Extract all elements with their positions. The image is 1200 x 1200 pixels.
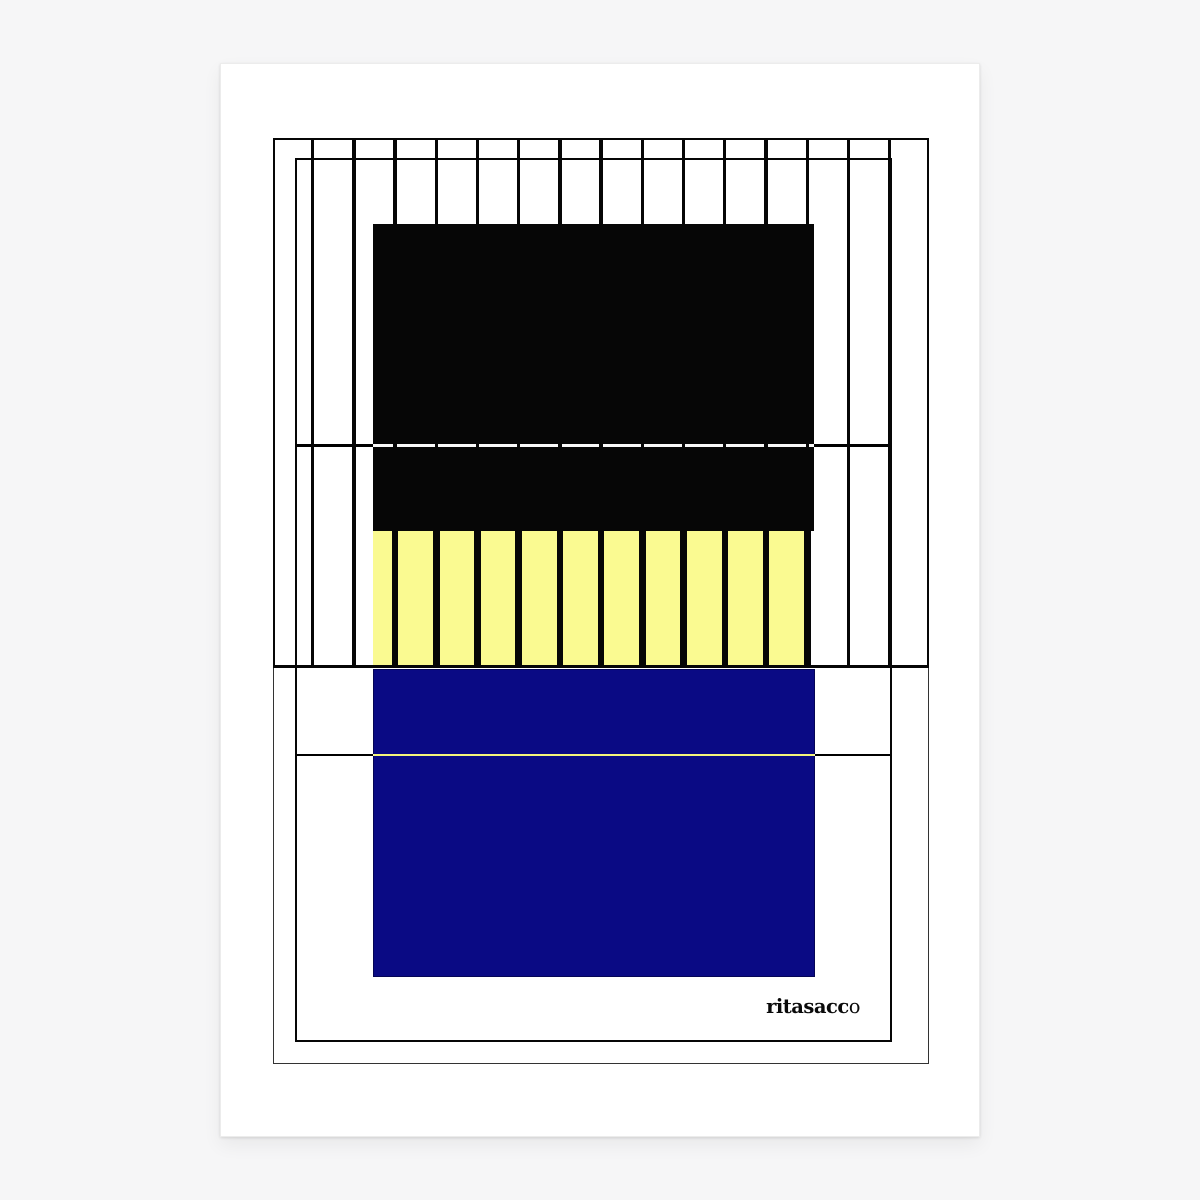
page-background: ritasacco (0, 0, 1200, 1200)
inner-frame (295, 158, 892, 1042)
artist-signature-last-letter: o (849, 995, 860, 1018)
artist-signature-main: ritasacc (766, 995, 849, 1018)
artist-signature: ritasacco (766, 997, 860, 1017)
poster-sheet: ritasacco (220, 63, 980, 1137)
